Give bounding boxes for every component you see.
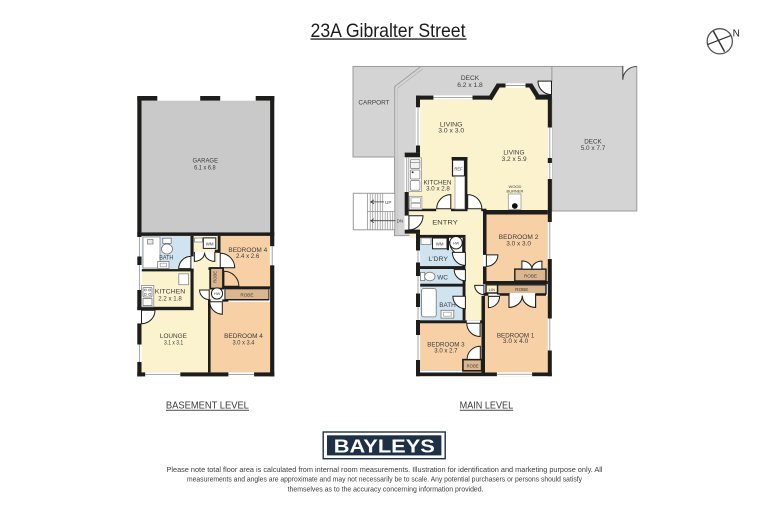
svg-text:BAYLEYS: BAYLEYS bbox=[334, 436, 435, 456]
svg-text:2.2 x 1.8: 2.2 x 1.8 bbox=[158, 296, 182, 303]
svg-text:DN: DN bbox=[397, 219, 404, 224]
svg-text:5.0 x 7.7: 5.0 x 7.7 bbox=[581, 145, 606, 152]
svg-text:ENTRY: ENTRY bbox=[432, 220, 458, 227]
svg-text:3.2 x 5.9: 3.2 x 5.9 bbox=[502, 156, 527, 163]
svg-text:6.2 x 1.8: 6.2 x 1.8 bbox=[457, 82, 483, 89]
svg-text:MAIN LEVEL: MAIN LEVEL bbox=[460, 400, 514, 411]
svg-text:3.0 x 2.8: 3.0 x 2.8 bbox=[426, 186, 450, 193]
svg-text:3.0 x 2.7: 3.0 x 2.7 bbox=[434, 347, 458, 354]
svg-text:BATH: BATH bbox=[159, 254, 173, 261]
svg-text:CARPORT: CARPORT bbox=[358, 99, 389, 106]
svg-text:3.1 x 3.1: 3.1 x 3.1 bbox=[164, 340, 183, 347]
svg-text:GARAGE: GARAGE bbox=[193, 157, 219, 164]
svg-text:BASEMENT LEVEL: BASEMENT LEVEL bbox=[166, 400, 249, 411]
svg-text:themselves as to the accuracy: themselves as to the accuracy concerning… bbox=[288, 486, 484, 493]
svg-text:HW: HW bbox=[453, 241, 460, 245]
svg-text:KITCHEN: KITCHEN bbox=[155, 289, 186, 296]
svg-text:HW: HW bbox=[214, 292, 221, 296]
svg-text:ROBE: ROBE bbox=[240, 292, 253, 297]
svg-text:3.0 x 3.0: 3.0 x 3.0 bbox=[506, 240, 531, 247]
svg-text:BURNER: BURNER bbox=[507, 189, 524, 194]
svg-text:L'DRY: L'DRY bbox=[428, 256, 448, 263]
svg-text:3.0 x 3.4: 3.0 x 3.4 bbox=[233, 340, 255, 347]
svg-text:UP: UP bbox=[385, 200, 391, 205]
svg-text:WM: WM bbox=[206, 241, 214, 246]
svg-text:3.0 x 3.0: 3.0 x 3.0 bbox=[438, 128, 464, 135]
svg-text:WC: WC bbox=[437, 275, 448, 282]
svg-text:REF: REF bbox=[454, 166, 463, 171]
svg-text:ROBE: ROBE bbox=[515, 287, 528, 292]
svg-text:N: N bbox=[733, 29, 740, 40]
svg-text:ROBE: ROBE bbox=[524, 273, 537, 278]
svg-text:6.1 x 6.8: 6.1 x 6.8 bbox=[194, 165, 216, 172]
svg-text:3.0 x 4.0: 3.0 x 4.0 bbox=[503, 338, 529, 345]
svg-text:measurements and angles are ap: measurements and angles are approximate … bbox=[187, 477, 583, 484]
svg-text:LIN: LIN bbox=[489, 287, 495, 292]
svg-text:ROBE: ROBE bbox=[213, 271, 218, 283]
svg-text:Please note total floor area i: Please note total floor area is calculat… bbox=[167, 467, 603, 474]
svg-text:2.4 x 2.6: 2.4 x 2.6 bbox=[236, 253, 260, 260]
svg-text:WM: WM bbox=[436, 241, 444, 246]
svg-text:ROBE: ROBE bbox=[467, 363, 479, 368]
svg-text:BATH: BATH bbox=[439, 302, 456, 309]
